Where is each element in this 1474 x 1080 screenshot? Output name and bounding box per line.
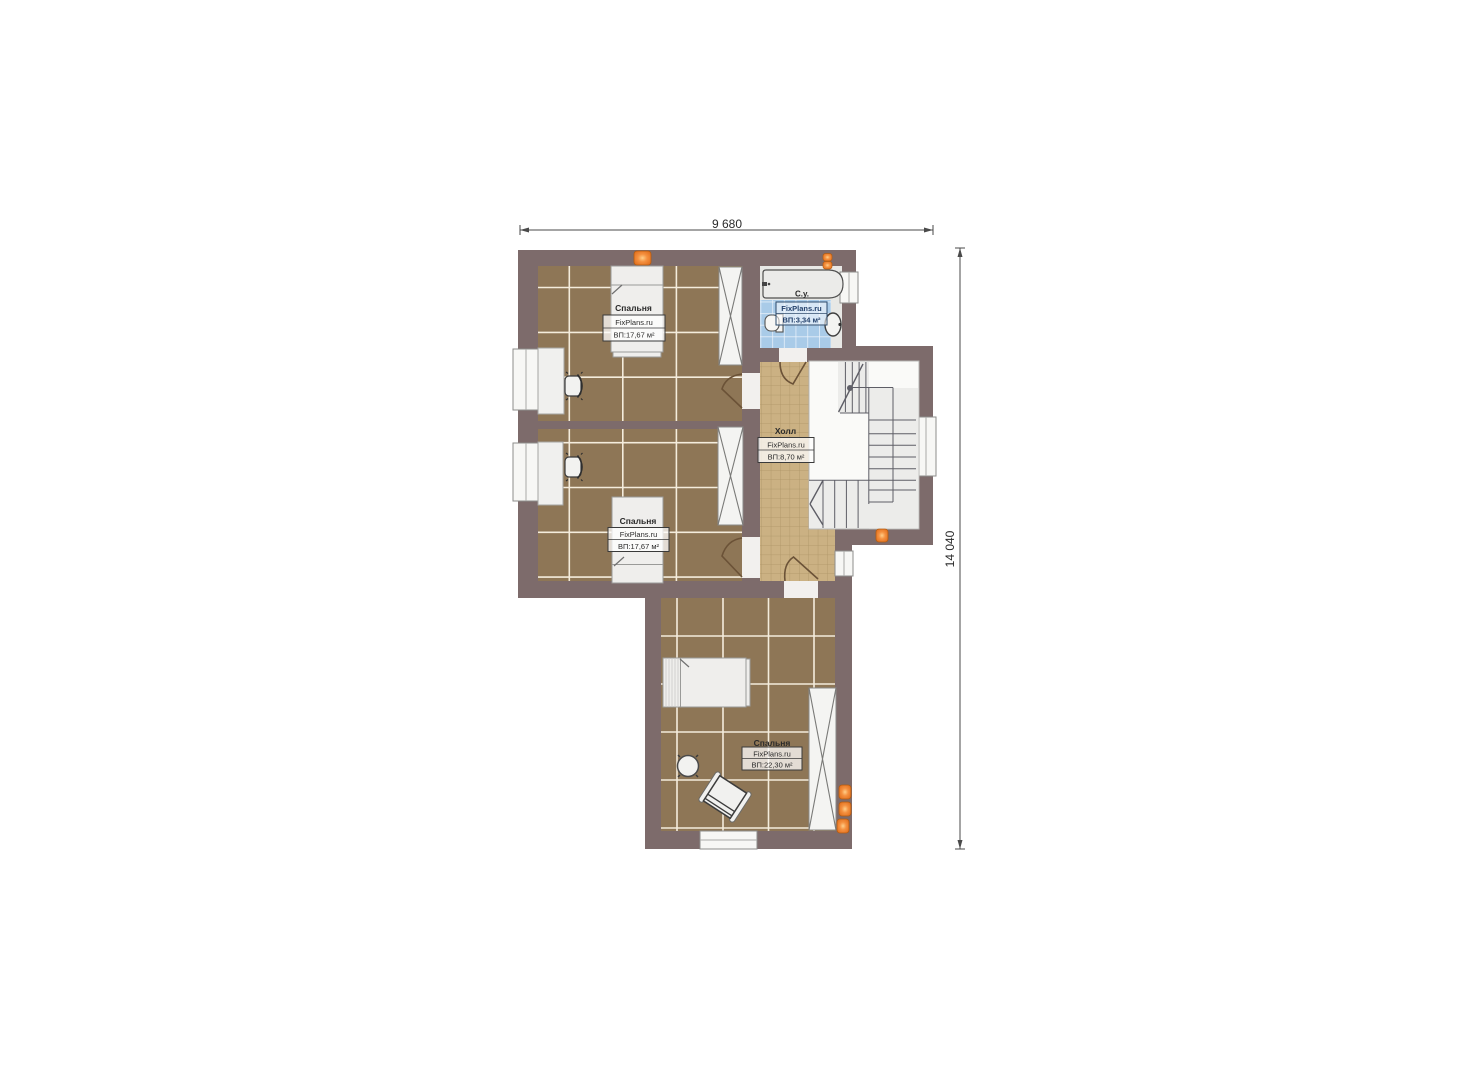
svg-text:С.у.: С.у. bbox=[795, 290, 809, 299]
svg-text:FixPlans.ru: FixPlans.ru bbox=[781, 304, 822, 313]
svg-text:FixPlans.ru: FixPlans.ru bbox=[753, 750, 791, 759]
svg-text:ВП:8,70 м²: ВП:8,70 м² bbox=[768, 453, 805, 462]
svg-text:ВП:17,67 м²: ВП:17,67 м² bbox=[614, 331, 655, 340]
svg-text:Спальня: Спальня bbox=[615, 303, 652, 313]
svg-text:Спальня: Спальня bbox=[620, 516, 657, 526]
svg-text:FixPlans.ru: FixPlans.ru bbox=[615, 318, 653, 327]
svg-text:ВП:17,67 м²: ВП:17,67 м² bbox=[618, 542, 659, 551]
svg-text:FixPlans.ru: FixPlans.ru bbox=[620, 530, 658, 539]
svg-text:9 680: 9 680 bbox=[712, 217, 742, 231]
svg-text:ВП:22,30 м²: ВП:22,30 м² bbox=[752, 761, 793, 770]
svg-text:14 040: 14 040 bbox=[943, 530, 957, 567]
svg-text:Холл: Холл bbox=[775, 426, 796, 436]
svg-text:ВП:3,34 м²: ВП:3,34 м² bbox=[782, 316, 821, 325]
svg-text:FixPlans.ru: FixPlans.ru bbox=[767, 441, 805, 450]
